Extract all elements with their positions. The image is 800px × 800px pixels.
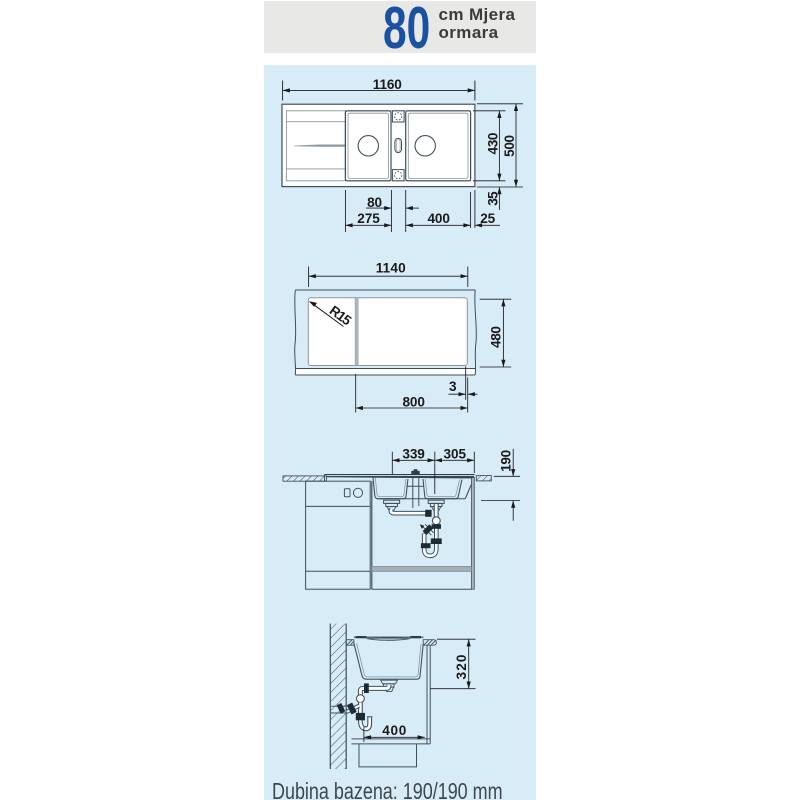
svg-text:800: 800 — [402, 394, 425, 409]
svg-text:400: 400 — [382, 723, 406, 738]
svg-text:305: 305 — [444, 446, 467, 461]
svg-text:1160: 1160 — [373, 77, 402, 92]
svg-text:190: 190 — [498, 450, 513, 472]
svg-text:80: 80 — [367, 195, 382, 210]
svg-text:400: 400 — [427, 211, 450, 226]
svg-text:1140: 1140 — [376, 261, 406, 276]
svg-text:500: 500 — [502, 135, 517, 157]
svg-text:3: 3 — [449, 379, 457, 394]
svg-text:275: 275 — [357, 211, 380, 226]
svg-text:339: 339 — [402, 446, 425, 461]
svg-text:25: 25 — [480, 211, 495, 226]
svg-text:35: 35 — [485, 191, 500, 206]
svg-text:480: 480 — [488, 326, 503, 348]
svg-text:430: 430 — [485, 133, 500, 155]
svg-text:320: 320 — [454, 655, 469, 680]
